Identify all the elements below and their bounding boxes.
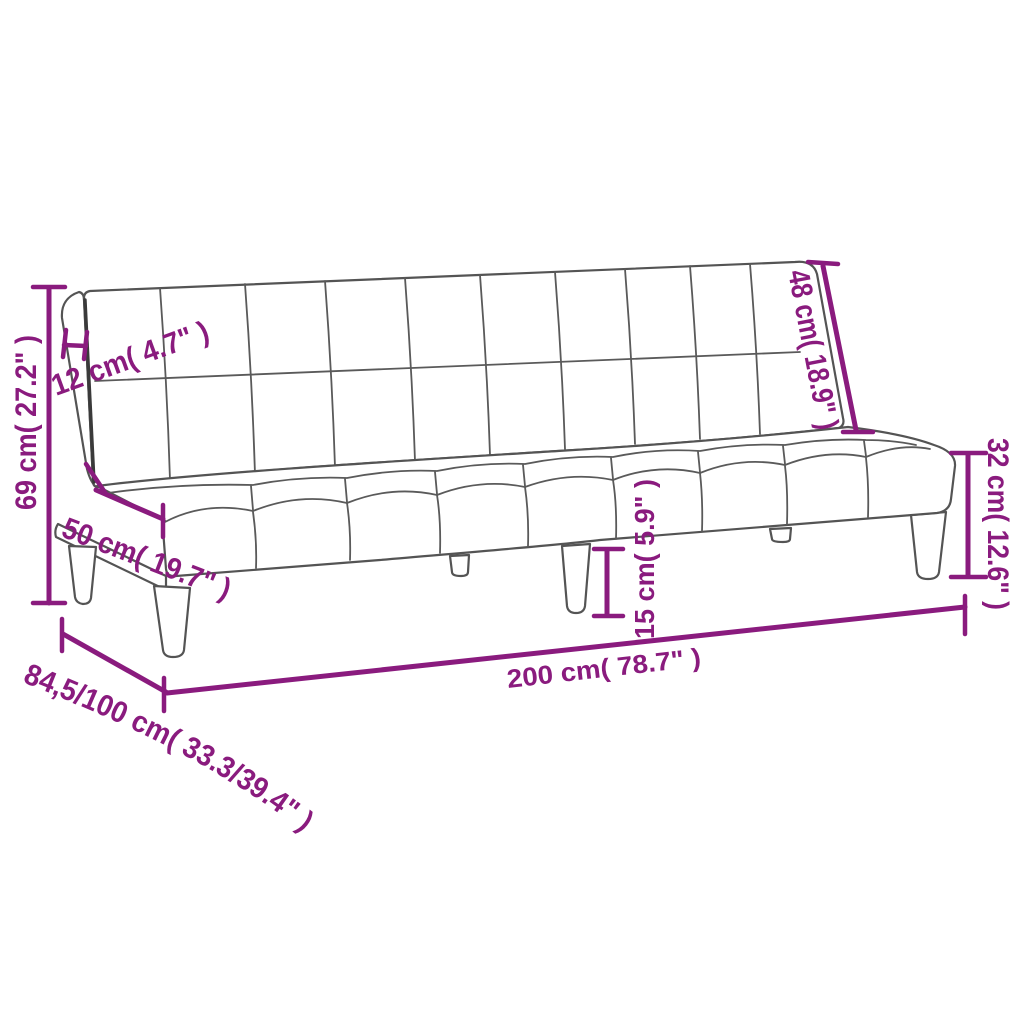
dimension-overall-height: 69 cm( 27.2" ) <box>10 287 65 603</box>
overall-depth-label: 84,5/100 cm( 33.3/39.4" ) <box>20 658 320 838</box>
right-leg <box>911 512 946 579</box>
leg-height-label: 15 cm( 5.9" ) <box>629 479 660 639</box>
seat-height-label: 32 cm( 12.6" ) <box>981 438 1014 610</box>
center-support-foot-right <box>770 528 791 542</box>
rear-left-leg <box>154 586 190 657</box>
overall-height-label: 69 cm( 27.2" ) <box>10 335 43 510</box>
diagram-canvas: 69 cm( 27.2" ) 12 cm( 4.7" ) 50 cm( 19.7… <box>0 0 1024 1024</box>
dimension-seat-height: 32 cm( 12.6" ) <box>951 438 1014 610</box>
dimension-diagram: 69 cm( 27.2" ) 12 cm( 4.7" ) 50 cm( 19.7… <box>0 0 1024 1024</box>
overall-depth-label-text: 84,5/100 cm( 33.3/39.4" ) <box>20 658 320 838</box>
front-middle-leg <box>562 544 590 613</box>
center-support-foot-left <box>450 555 469 576</box>
overall-width-label: 200 cm( 78.7" ) <box>505 642 702 694</box>
dimension-overall-width: 200 cm( 78.7" ) <box>164 596 965 711</box>
